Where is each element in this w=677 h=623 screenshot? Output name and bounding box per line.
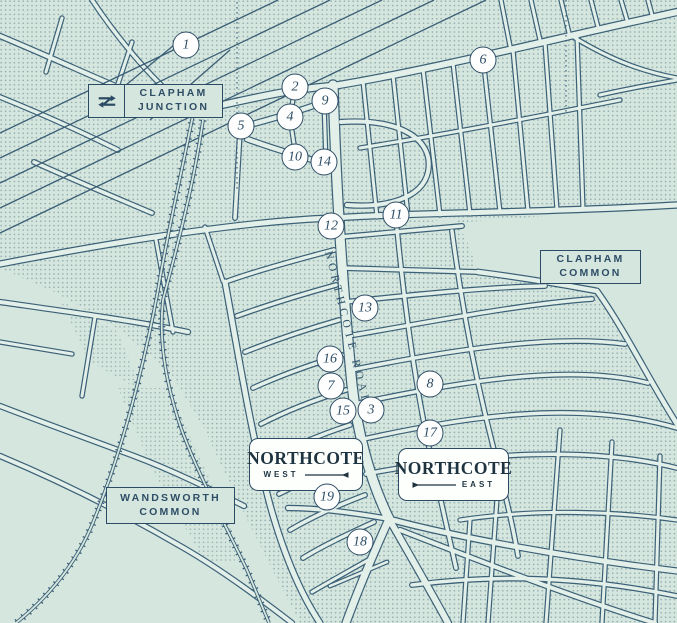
- label-line: COMMON: [557, 267, 625, 281]
- card-title: NORTHCOTE: [247, 450, 365, 468]
- card-subtitle: EAST: [462, 480, 495, 489]
- label-clapham-junction-text: CLAPHAM JUNCTION: [125, 87, 222, 114]
- label-line: WANDSWORTH: [120, 492, 221, 506]
- map-marker-9[interactable]: 9: [312, 88, 339, 115]
- label-clapham-common: CLAPHAM COMMON: [540, 250, 641, 284]
- map-marker-3[interactable]: 3: [358, 397, 385, 424]
- card-subtitle: WEST: [263, 470, 298, 479]
- label-line: CLAPHAM: [557, 253, 625, 267]
- label-line: CLAPHAM: [125, 87, 222, 101]
- arrow-right-icon: [305, 471, 349, 479]
- map-marker-13[interactable]: 13: [352, 295, 379, 322]
- map-marker-15[interactable]: 15: [330, 398, 357, 425]
- map-marker-11[interactable]: 11: [383, 202, 410, 229]
- card-northcote-west: NORTHCOTE WEST: [249, 438, 363, 491]
- map-marker-18[interactable]: 18: [347, 529, 374, 556]
- map-marker-16[interactable]: 16: [317, 346, 344, 373]
- map-marker-14[interactable]: 14: [311, 149, 338, 176]
- map-marker-17[interactable]: 17: [417, 420, 444, 447]
- map-marker-8[interactable]: 8: [417, 371, 444, 398]
- map-marker-7[interactable]: 7: [318, 373, 345, 400]
- map-marker-5[interactable]: 5: [228, 113, 255, 140]
- map-marker-2[interactable]: 2: [282, 74, 309, 101]
- arrow-left-icon: [412, 481, 456, 489]
- map-canvas: NORTHCOTE ROAD CLAPHAM JUNCTION CLAPHAM …: [0, 0, 677, 623]
- map-marker-4[interactable]: 4: [277, 104, 304, 131]
- card-northcote-east: NORTHCOTE EAST: [398, 448, 509, 501]
- map-marker-19[interactable]: 19: [314, 484, 341, 511]
- map-marker-10[interactable]: 10: [282, 144, 309, 171]
- label-wandsworth-common: WANDSWORTH COMMON: [106, 487, 235, 524]
- map-marker-1[interactable]: 1: [173, 32, 200, 59]
- label-line: JUNCTION: [125, 101, 222, 115]
- national-rail-icon: [89, 85, 125, 117]
- label-clapham-junction: CLAPHAM JUNCTION: [88, 84, 223, 118]
- card-title: NORTHCOTE: [395, 460, 513, 478]
- label-line: COMMON: [120, 506, 221, 520]
- map-marker-12[interactable]: 12: [318, 213, 345, 240]
- map-marker-6[interactable]: 6: [470, 47, 497, 74]
